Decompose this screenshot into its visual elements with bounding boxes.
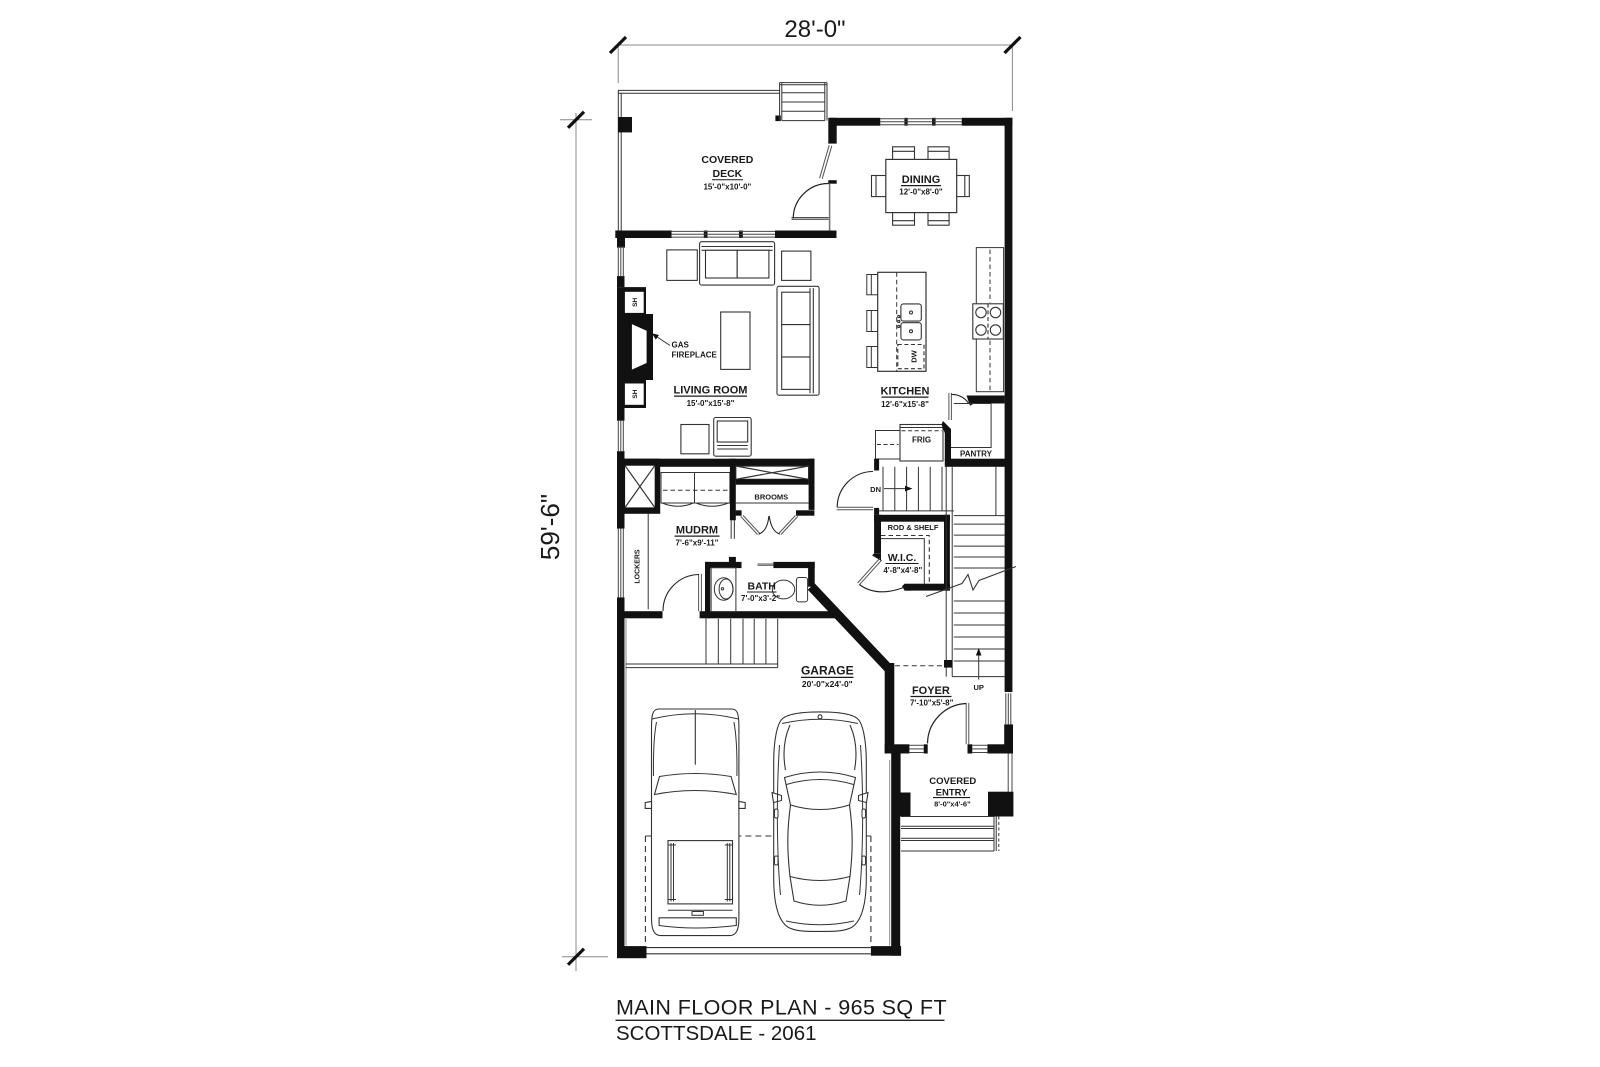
svg-text:FIREPLACE: FIREPLACE: [672, 351, 718, 360]
svg-text:7'-6"x9'-11": 7'-6"x9'-11": [676, 538, 719, 547]
svg-text:GAS: GAS: [672, 341, 690, 350]
svg-text:FOYER: FOYER: [912, 685, 950, 697]
svg-text:12'-6"x15'-8": 12'-6"x15'-8": [881, 400, 929, 409]
svg-text:PANTRY: PANTRY: [960, 449, 993, 458]
svg-text:FRIG: FRIG: [912, 436, 931, 445]
svg-text:59'-6": 59'-6": [535, 494, 565, 560]
svg-text:7'-0"x3'-2": 7'-0"x3'-2": [741, 594, 780, 603]
svg-text:LIVING ROOM: LIVING ROOM: [674, 385, 748, 397]
svg-text:15'-0"x15'-8": 15'-0"x15'-8": [687, 399, 735, 408]
svg-text:15'-0"x10'-0": 15'-0"x10'-0": [703, 183, 751, 192]
svg-text:BROOMS: BROOMS: [754, 492, 788, 501]
svg-text:MAIN FLOOR PLAN - 965 SQ FT: MAIN FLOOR PLAN - 965 SQ FT: [616, 996, 947, 1020]
svg-text:DECK: DECK: [713, 168, 743, 180]
svg-text:DN: DN: [870, 485, 881, 494]
svg-text:7'-10"x5'-8": 7'-10"x5'-8": [910, 699, 954, 708]
svg-text:UP: UP: [973, 683, 983, 692]
svg-text:28'-0": 28'-0": [784, 16, 845, 43]
svg-text:ROD & SHELF: ROD & SHELF: [888, 523, 939, 532]
svg-text:MUDRM: MUDRM: [676, 525, 718, 537]
svg-text:DW: DW: [910, 349, 919, 362]
svg-text:ENTRY: ENTRY: [936, 787, 969, 798]
svg-text:LOCKERS: LOCKERS: [635, 549, 642, 584]
svg-text:COVERED: COVERED: [701, 154, 753, 166]
svg-text:SH: SH: [632, 389, 639, 398]
svg-text:GARAGE: GARAGE: [801, 664, 854, 678]
svg-text:SCOTTSDALE - 2061: SCOTTSDALE - 2061: [616, 1022, 817, 1045]
svg-text:8'-0"x4'-6": 8'-0"x4'-6": [934, 800, 971, 809]
svg-text:SH: SH: [632, 297, 639, 306]
svg-text:W.I.C.: W.I.C.: [888, 552, 917, 564]
svg-text:DINING: DINING: [902, 174, 941, 186]
svg-text:4'-8"x4'-8": 4'-8"x4'-8": [883, 566, 922, 575]
svg-text:KITCHEN: KITCHEN: [881, 386, 930, 398]
svg-text:BATH: BATH: [748, 581, 776, 593]
svg-text:20'-0"x24'-0": 20'-0"x24'-0": [802, 679, 853, 689]
svg-text:12'-0"x8'-0": 12'-0"x8'-0": [899, 188, 943, 197]
svg-text:COVERED: COVERED: [929, 776, 976, 787]
